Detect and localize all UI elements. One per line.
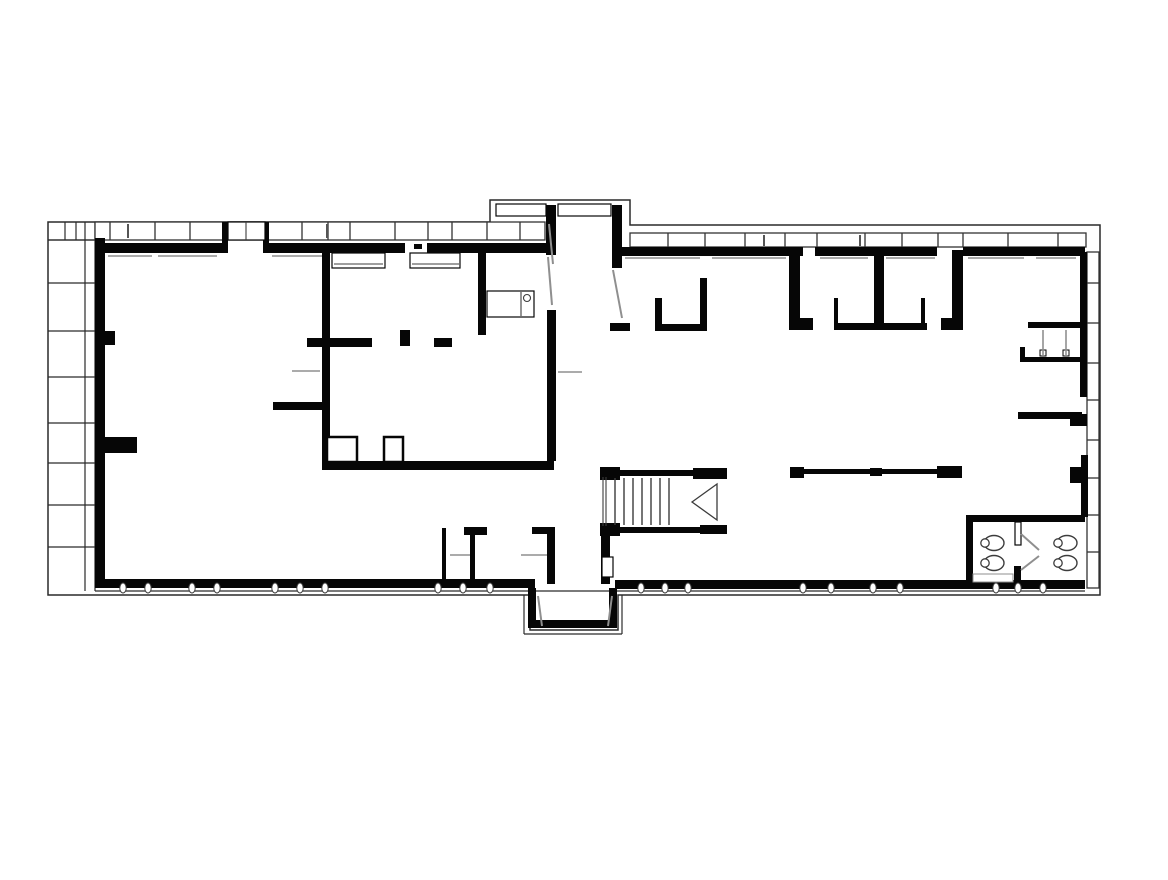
terrace-grid [48,222,95,591]
furniture-and-closets [228,204,1069,582]
window-bands [95,206,1099,588]
toilet-icon [1054,556,1077,571]
stair-direction-arrow [692,484,717,520]
toilet-icon [1054,536,1077,551]
window-sill-lines [108,256,1076,258]
floor-plan-page [0,0,1168,880]
shelf-lines [292,330,1066,555]
interior-walls [95,205,1088,628]
outer-boundary [48,200,1100,634]
toilet-icon [981,556,1004,571]
floor-plan-drawing [0,0,1168,880]
toilet-icon [981,536,1004,551]
staircase [615,478,669,525]
